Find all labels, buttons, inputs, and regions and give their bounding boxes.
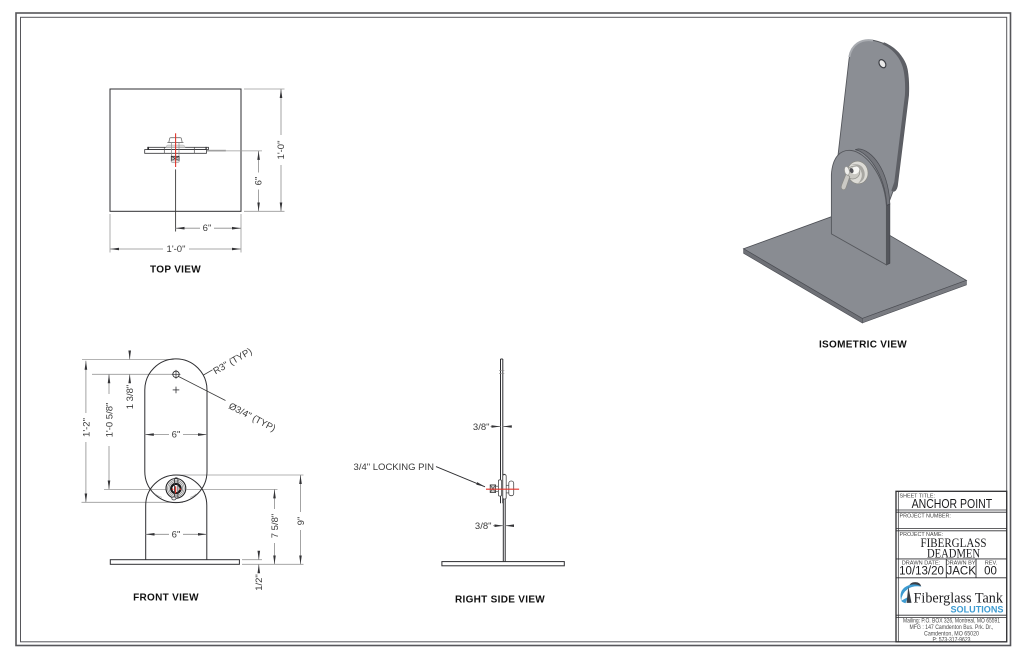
svg-text:9": 9" (296, 517, 307, 526)
svg-text:RIGHT SIDE VIEW: RIGHT SIDE VIEW (455, 594, 545, 605)
svg-text:6": 6" (172, 529, 181, 540)
svg-text:1'-0 5/8": 1'-0 5/8" (104, 403, 115, 438)
svg-text:1'-2": 1'-2" (81, 418, 92, 437)
svg-text:10/13/20: 10/13/20 (899, 566, 944, 578)
svg-text:ISOMETRIC VIEW: ISOMETRIC VIEW (819, 340, 907, 351)
svg-text:P: 573-317-9623: P: 573-317-9623 (933, 636, 971, 643)
svg-text:1'-0": 1'-0" (167, 244, 186, 255)
svg-text:3/4" LOCKING PIN: 3/4" LOCKING PIN (354, 462, 435, 473)
svg-text:6": 6" (203, 223, 212, 234)
svg-text:FRONT VIEW: FRONT VIEW (133, 593, 199, 604)
svg-text:ANCHOR POINT: ANCHOR POINT (912, 497, 993, 511)
svg-text:JACK: JACK (946, 566, 976, 578)
svg-text:SOLUTIONS: SOLUTIONS (951, 604, 1005, 615)
svg-text:DEADMEN: DEADMEN (927, 546, 980, 561)
svg-text:1 3/8": 1 3/8" (125, 385, 136, 410)
svg-text:1'-0": 1'-0" (276, 141, 287, 160)
svg-text:3/8": 3/8" (473, 422, 490, 433)
svg-text:7 5/8": 7 5/8" (270, 514, 281, 539)
svg-text:1/2": 1/2" (254, 574, 265, 591)
svg-text:00: 00 (984, 566, 997, 578)
svg-text:6": 6" (254, 177, 265, 186)
svg-text:TOP VIEW: TOP VIEW (150, 264, 201, 275)
svg-text:PROJECT NUMBER:: PROJECT NUMBER: (900, 513, 951, 519)
svg-text:6": 6" (172, 430, 181, 441)
svg-text:3/8": 3/8" (475, 521, 492, 532)
